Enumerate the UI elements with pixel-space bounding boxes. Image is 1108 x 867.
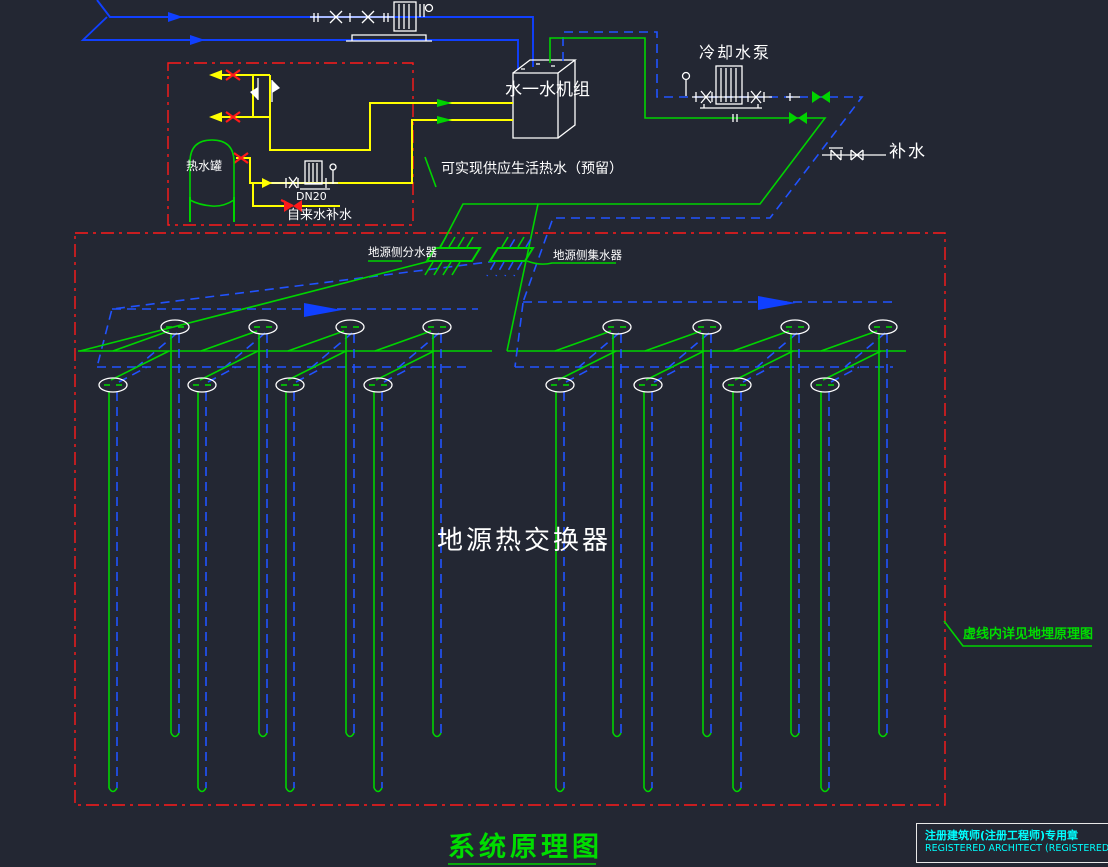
hot-water-tank-icon — [190, 140, 234, 222]
borehole-icon — [423, 320, 451, 334]
dhw-note-label: 可实现供应生活热水（预留） — [441, 162, 623, 176]
ground-heat-exchanger-label: 地源热交换器 — [437, 528, 611, 554]
schematic-linework — [0, 0, 1108, 867]
borehole-icon — [781, 320, 809, 334]
borehole-icon — [693, 320, 721, 334]
cooling-pump-icon — [683, 66, 801, 122]
dashed-area-note: 虚线内详见地埋原理图 — [963, 628, 1093, 641]
borehole-icon — [546, 378, 574, 392]
condenser-loop-pipes — [80, 32, 862, 367]
borehole-icon — [99, 378, 127, 392]
tap-water-makeup-label: 自来水补水 — [287, 209, 352, 222]
borehole-icon — [603, 320, 631, 334]
flow-arrow-icon — [437, 99, 452, 107]
flow-arrow-icon — [209, 70, 222, 80]
borehole-icon — [336, 320, 364, 334]
pipe-size-label: DN20 — [296, 191, 327, 202]
hot-water-tank-label: 热水罐 — [186, 160, 222, 172]
makeup-water-line — [822, 148, 886, 160]
distributor-label: 地源侧分水器 — [368, 247, 437, 259]
cooling-pump-label: 冷却水泵 — [699, 45, 771, 61]
chilled-water-pipes — [83, 0, 533, 70]
flow-arrow-icon — [190, 35, 205, 45]
stamp-line-cn: 注册建筑师(注册工程师)专用章 — [925, 830, 1078, 841]
flow-arrow-icon — [304, 303, 342, 317]
tap-water-pump-icon — [262, 161, 338, 189]
borehole-icon — [869, 320, 897, 334]
borehole-icon — [723, 378, 751, 392]
borehole-icon — [188, 378, 216, 392]
borehole-icon — [811, 378, 839, 392]
flow-arrow-icon — [437, 116, 452, 124]
stamp-title-block: 注册建筑师(注册工程师)专用章 REGISTERED ARCHITECT (RE… — [916, 823, 1108, 863]
flow-arrow-icon — [168, 12, 183, 22]
shutoff-valve-icon — [226, 70, 302, 212]
borehole-icon — [276, 378, 304, 392]
makeup-water-label: 补水 — [889, 144, 927, 161]
red-boundary-hot-water-zone — [168, 63, 413, 225]
stamp-line-en: REGISTERED ARCHITECT (REGISTERED ENGINEE… — [925, 844, 1108, 854]
drawing-title: 系统原理图 — [448, 834, 603, 861]
circulation-pump-icon — [310, 2, 433, 41]
borehole-icon — [249, 320, 277, 334]
cad-schematic-canvas: 水一水机组 冷却水泵 补水 热水罐 可实现供应生活热水（预留） DN20 自来水… — [0, 0, 1108, 867]
flow-arrow-icon — [758, 296, 796, 310]
borehole-icon — [364, 378, 392, 392]
borehole-icon — [634, 378, 662, 392]
water-water-unit-label: 水一水机组 — [505, 82, 590, 99]
collector-label: 地源侧集水器 — [553, 250, 622, 262]
check-valve-icon — [250, 78, 280, 102]
flow-arrow-icon — [209, 112, 222, 122]
